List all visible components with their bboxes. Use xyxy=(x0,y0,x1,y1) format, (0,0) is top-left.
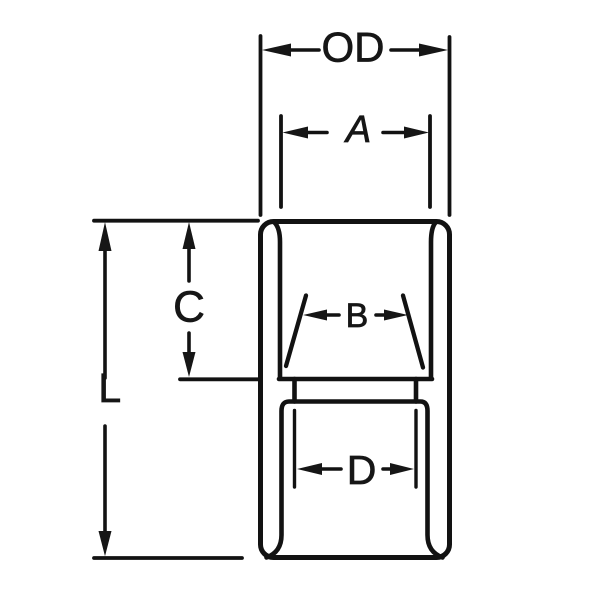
svg-text:D: D xyxy=(347,447,377,493)
svg-text:B: B xyxy=(346,297,369,335)
svg-text:C: C xyxy=(173,283,205,332)
svg-text:L: L xyxy=(98,365,121,411)
svg-text:OD: OD xyxy=(322,24,385,71)
svg-text:A: A xyxy=(344,109,371,151)
